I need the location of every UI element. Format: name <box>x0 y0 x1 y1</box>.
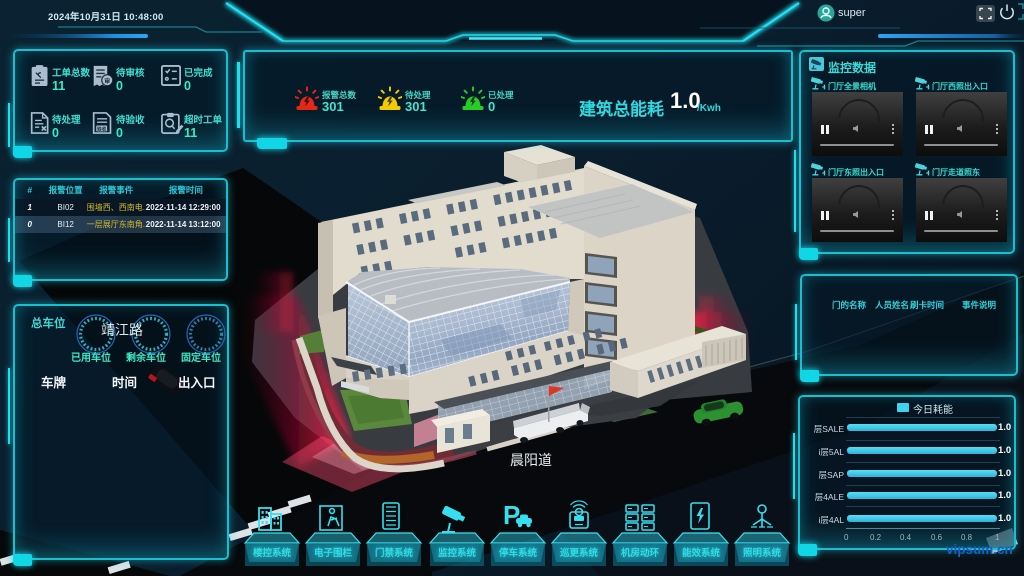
svg-text:验收: 验收 <box>97 126 107 133</box>
svg-text:审: 审 <box>104 77 110 85</box>
svg-text:P: P <box>503 500 520 530</box>
